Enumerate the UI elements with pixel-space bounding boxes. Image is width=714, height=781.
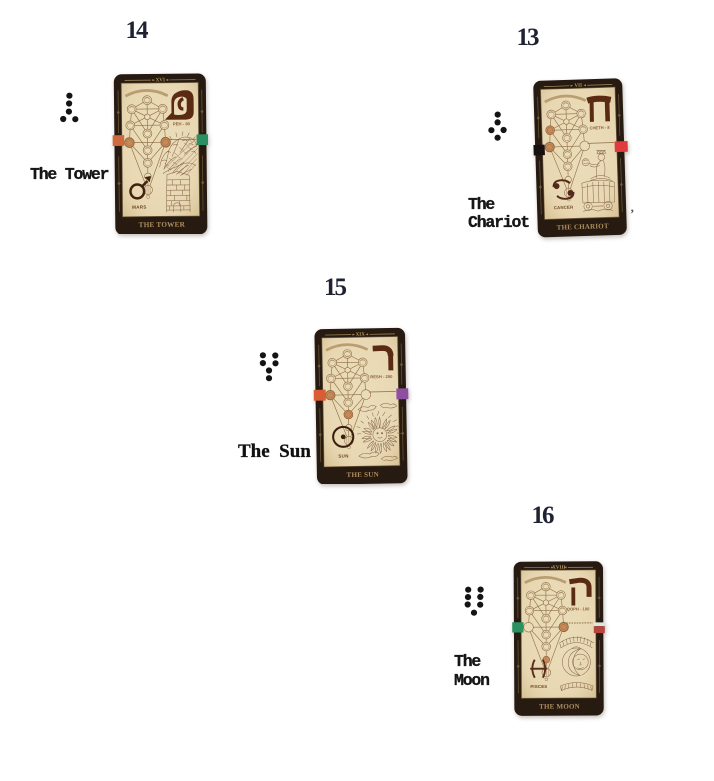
svg-text:RESH - 200: RESH - 200 — [370, 373, 393, 378]
svg-text:XVIII: XVIII — [552, 565, 565, 570]
svg-text:XVI: XVI — [156, 77, 166, 83]
svg-text:THE TOWER: THE TOWER — [139, 220, 186, 229]
svg-text:PEH - 80: PEH - 80 — [173, 121, 191, 126]
svg-text:VII: VII — [574, 83, 582, 89]
svg-text:XIX: XIX — [356, 331, 366, 337]
svg-text:PISCES: PISCES — [530, 684, 547, 689]
svg-text:CANCER: CANCER — [554, 205, 574, 211]
svg-text:QOPH - 100: QOPH - 100 — [566, 606, 589, 611]
svg-text:THE CHARIOT: THE CHARIOT — [557, 222, 609, 232]
svg-text:MARS: MARS — [132, 204, 147, 209]
svg-text:THE MOON: THE MOON — [539, 702, 580, 710]
svg-text:SUN: SUN — [338, 453, 348, 458]
svg-text:THE SUN: THE SUN — [346, 470, 379, 479]
svg-text:CHETH - 8: CHETH - 8 — [590, 125, 611, 131]
